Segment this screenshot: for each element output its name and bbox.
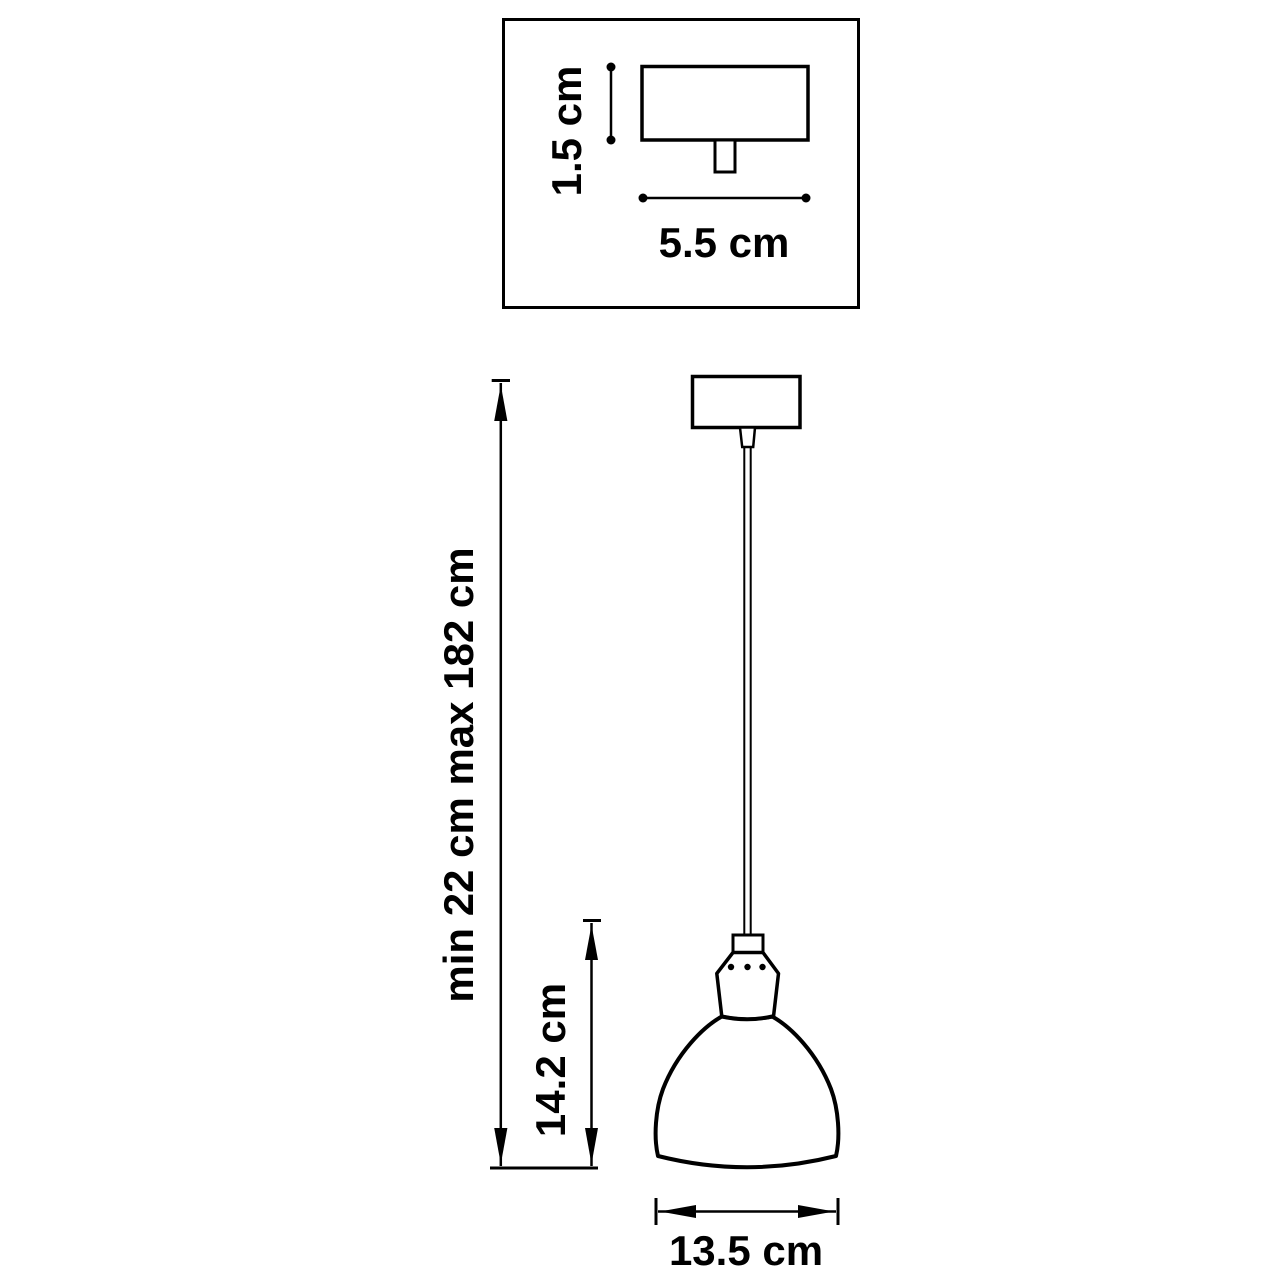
dimension-endpoint-dot — [802, 194, 811, 203]
dimension-endpoint-dot — [639, 194, 648, 203]
dimension-endpoint-dot — [607, 63, 616, 72]
canopy-top-view — [642, 67, 808, 141]
canopy-height-dimension — [607, 63, 616, 145]
shade-width-dimension — [656, 1198, 838, 1225]
lamp-socket — [717, 953, 779, 1020]
dimension-arrow-up — [585, 925, 598, 960]
dimension-arrow-down — [494, 1128, 507, 1164]
pendant-lamp — [656, 377, 839, 1168]
dimension-endpoint-dot — [607, 136, 616, 145]
lamp-shade — [656, 1017, 839, 1168]
canopy-height-label: 1.5 cm — [546, 66, 588, 197]
dimension-arrow-left — [660, 1205, 696, 1218]
canopy-connector — [740, 428, 755, 448]
dimension-arrow-right — [798, 1205, 834, 1218]
cord-grip — [733, 935, 763, 953]
canopy-stem — [715, 140, 735, 172]
dimension-arrow-up — [494, 385, 507, 421]
canopy-width-label: 5.5 cm — [659, 222, 790, 264]
suspension-height-label: min 22 cm max 182 cm — [438, 547, 480, 1002]
shade-height-label: 14.2 cm — [530, 983, 572, 1137]
shade-width-label: 13.5 cm — [669, 1230, 823, 1272]
ceiling-canopy — [693, 377, 801, 428]
dimension-arrow-down — [585, 1128, 598, 1164]
socket-vent-dot — [728, 964, 734, 970]
socket-vent-dot — [759, 964, 765, 970]
socket-vent-dot — [744, 964, 750, 970]
line-art — [0, 0, 1280, 1280]
shade-height-dimension — [583, 921, 601, 1167]
dimension-diagram: 1.5 cm 5.5 cm min 22 cm max 182 cm 14.2 … — [0, 0, 1280, 1280]
suspension-cord — [744, 447, 750, 936]
canopy-width-dimension — [639, 194, 811, 203]
